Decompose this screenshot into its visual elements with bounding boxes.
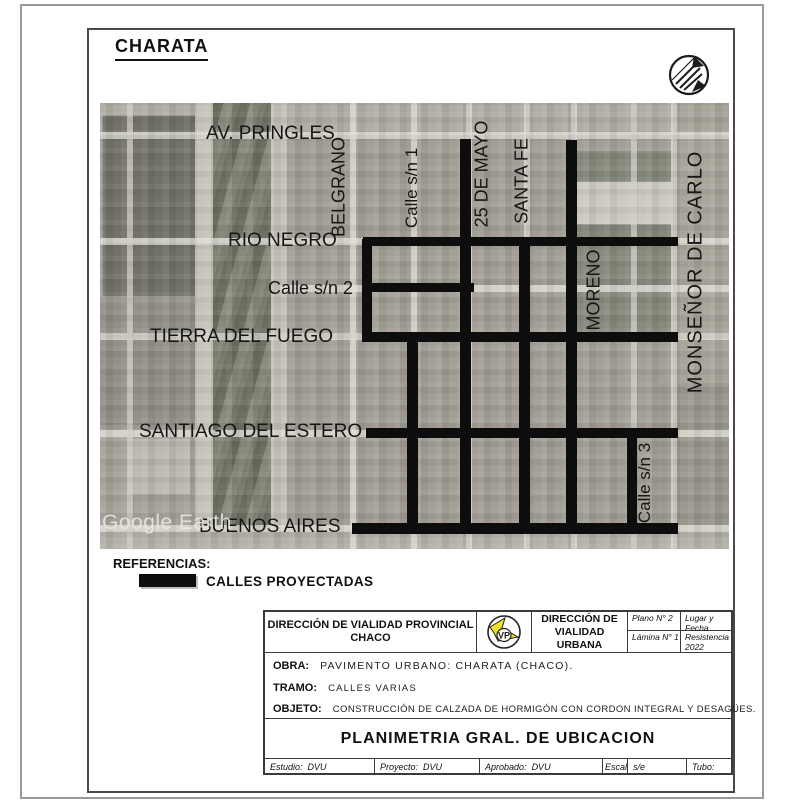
- estudio-value: DVU: [308, 762, 327, 772]
- objeto-row: OBJETO: CONSTRUCCIÓN DE CALZADA DE HORMI…: [273, 703, 756, 715]
- street-label-santiago-del-estero: SANTIAGO DEL ESTERO: [139, 421, 362, 443]
- google-earth-watermark: Google Earth: [102, 511, 232, 535]
- projected-bar-25-de-mayo: [460, 139, 471, 534]
- projected-bar-calle-sn2: [362, 283, 474, 292]
- aprobado-value: DVU: [532, 762, 551, 772]
- org-urbana-cell: DIRECCIÓN DE VIALIDAD URBANA: [532, 612, 628, 653]
- tramo-row: TRAMO: CALLES VARIAS: [273, 682, 417, 694]
- aprobado-cell: Aprobado: DVU: [480, 759, 603, 774]
- north-arrow-icon: [664, 50, 714, 100]
- proyecto-value: DVU: [423, 762, 442, 772]
- obra-label: OBRA:: [273, 660, 309, 672]
- org-provincial-line2: CHACO: [350, 632, 390, 645]
- projected-bar-calle-sn1-south: [407, 332, 418, 534]
- tramo-label: TRAMO:: [273, 682, 317, 694]
- svg-text:VP: VP: [498, 631, 510, 641]
- org-provincial-line1: DIRECCIÓN DE VIALIDAD PROVINCIAL: [268, 619, 474, 632]
- tubo-cell: Tubo:: [687, 759, 731, 774]
- street-label-santa-fe: SANTA FE: [512, 138, 533, 224]
- plan-sheet: CHARATA: [0, 0, 790, 811]
- obra-value: PAVIMENTO URBANO: CHARATA (CHACO).: [320, 660, 573, 672]
- terrain-patch: [100, 303, 195, 425]
- legend-heading: REFERENCIAS:: [113, 556, 211, 571]
- street-label-rio-negro: RIO NEGRO: [228, 230, 337, 252]
- street-label-belgrano: BELGRANO: [329, 137, 350, 237]
- org-urbana-line1: DIRECCIÓN DE: [541, 613, 617, 626]
- projected-bar-santa-fe: [519, 237, 530, 534]
- projected-bar-west-vertical: [362, 239, 372, 342]
- street-label-25-de-mayo: 25 DE MAYO: [472, 121, 493, 228]
- street-label-calle-sn1: Calle s/n 1: [402, 148, 422, 228]
- page-title: CHARATA: [115, 36, 208, 61]
- terrain-patch: [128, 439, 190, 494]
- work-description-cell: OBRA: PAVIMENTO URBANO: CHARATA (CHACO).…: [265, 653, 731, 719]
- warehouse-roof-patch: [572, 181, 672, 225]
- street-label-av-pringles: AV. PRINGLES: [206, 123, 335, 145]
- objeto-label: OBJETO:: [273, 703, 322, 715]
- escalas-label-cell: Escalas: [603, 759, 628, 774]
- street-label-calle-sn2: Calle s/n 2: [268, 278, 353, 299]
- sheet-name: PLANIMETRIA GRAL. DE UBICACION: [341, 730, 656, 748]
- org-provincial-cell: DIRECCIÓN DE VIALIDAD PROVINCIAL CHACO: [265, 612, 477, 653]
- road-line: [127, 103, 133, 549]
- projected-bar-moreno: [566, 140, 577, 534]
- plano-cell: Plano N° 2: [628, 612, 681, 631]
- aprobado-label: Aprobado:: [485, 762, 527, 772]
- street-label-tierra-del-fuego: TIERRA DEL FUEGO: [150, 326, 333, 348]
- vp-logo-cell: VP: [477, 612, 532, 653]
- lugar-fecha-cell: Lugar y Fecha: [681, 612, 731, 631]
- street-label-monsenor-de-carlo: MONSEÑOR DE CARLO: [685, 151, 708, 394]
- proyecto-cell: Proyecto: DVU: [375, 759, 480, 774]
- title-block: DIRECCIÓN DE VIALIDAD PROVINCIAL CHACO V…: [263, 610, 733, 775]
- proyecto-label: Proyecto:: [380, 762, 418, 772]
- street-label-moreno: MORENO: [584, 250, 605, 331]
- satellite-map: AV. PRINGLES BELGRANO Calle s/n 1 25 DE …: [100, 103, 729, 549]
- legend-swatch-projected-streets: [139, 574, 196, 587]
- obra-row: OBRA: PAVIMENTO URBANO: CHARATA (CHACO).: [273, 660, 573, 672]
- escalas-value-cell: s/e: [628, 759, 687, 774]
- sheet-name-cell: PLANIMETRIA GRAL. DE UBICACION: [265, 719, 731, 759]
- road-line: [350, 103, 356, 549]
- estudio-label: Estudio:: [270, 762, 303, 772]
- legend-item-label: CALLES PROYECTADAS: [206, 574, 373, 589]
- estudio-cell: Estudio: DVU: [265, 759, 375, 774]
- tramo-value: CALLES VARIAS: [328, 683, 417, 694]
- street-label-calle-sn3: Calle s/n 3: [635, 443, 655, 523]
- resistencia-cell: Resistencia 2022: [681, 631, 731, 653]
- terrain-patch: [102, 115, 202, 297]
- org-urbana-line2: VIALIDAD URBANA: [532, 626, 627, 652]
- lamina-cell: Lámina N° 1: [628, 631, 681, 653]
- vp-logo-icon: VP: [480, 613, 528, 651]
- road-line: [671, 103, 677, 549]
- objeto-value: CONSTRUCCIÓN DE CALZADA DE HORMIGÓN CON …: [333, 704, 756, 715]
- resistencia-line2: 2022: [685, 643, 731, 653]
